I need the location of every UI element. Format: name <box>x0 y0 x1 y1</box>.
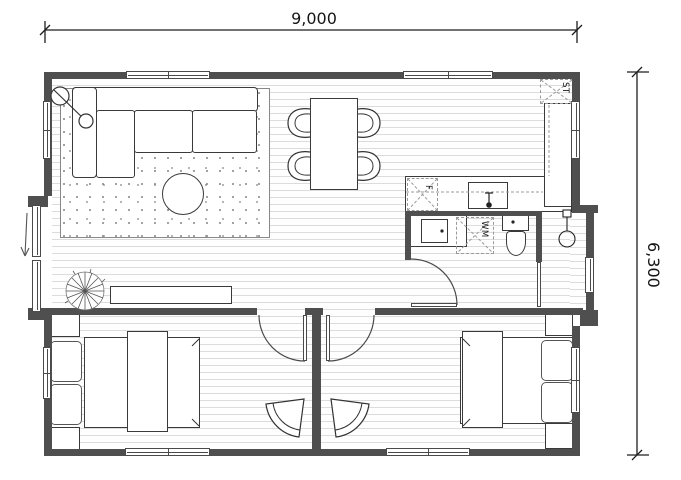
window-right-bedroom2 <box>571 347 580 413</box>
wall-bathroom-hall <box>536 213 542 262</box>
console-table <box>110 286 232 304</box>
fridge-box <box>407 178 438 211</box>
glass-door-panel-lower <box>32 260 41 312</box>
window-left-bedroom1 <box>43 347 51 399</box>
wall-right-step-upper <box>572 205 598 213</box>
sofa-seat-cushion <box>134 110 193 153</box>
storage-label: ST <box>560 82 570 94</box>
window-left-living <box>43 101 51 159</box>
wall-bathroom-top <box>405 211 542 216</box>
dining-table <box>310 98 358 190</box>
bedroom2-nightstand <box>545 423 573 449</box>
window-right-kitchen <box>571 101 580 159</box>
washbasin <box>421 219 448 243</box>
hall-door-leaf <box>537 262 541 307</box>
bedroom2-duvet <box>462 331 503 428</box>
fridge-label: F <box>423 185 433 190</box>
bedroom2-nightstand <box>545 312 573 336</box>
bedroom1-pillow <box>50 341 82 382</box>
bedroom1-duvet <box>127 331 168 432</box>
window-bottom-bedroom2 <box>386 448 470 456</box>
entry-hall-floor <box>570 213 586 310</box>
floor-plan: 9,000 6,300 <box>0 0 681 480</box>
entry-door-opening <box>585 257 594 293</box>
wall-bedroom-separator-right <box>375 308 583 315</box>
glass-door-panel-upper <box>32 205 41 257</box>
wall-bathroom-left <box>405 211 411 260</box>
window-bottom-bedroom1 <box>125 448 210 456</box>
toilet-cistern <box>502 215 529 231</box>
wall-top <box>44 72 580 79</box>
wall-bedroom-separator-left <box>52 308 257 315</box>
bedroom1-door-leaf <box>303 315 307 361</box>
height-dimension-label: 6,300 <box>644 242 663 288</box>
width-dimension-label: 9,000 <box>278 9 350 28</box>
bedroom2-pillow <box>541 382 573 423</box>
wall-between-bedrooms <box>312 315 321 449</box>
bedroom1-pillow <box>50 384 82 425</box>
slide-direction-arrow <box>21 213 29 256</box>
coffee-table <box>162 173 204 215</box>
sofa-chaise-cushion <box>96 110 135 178</box>
sofa-seat-cushion <box>192 110 257 153</box>
bedroom2-pillow <box>541 340 573 381</box>
window-top-kitchen <box>403 71 493 79</box>
bedroom2-door-leaf <box>326 315 330 361</box>
kitchen-sink <box>468 182 508 209</box>
washing-machine-label: WM <box>479 221 489 238</box>
kitchen-tall-counter <box>544 103 572 207</box>
wall-bedroom-separator-center <box>305 308 323 315</box>
sofa-chaise-arm <box>72 87 97 178</box>
bathroom-door-leaf <box>411 303 457 307</box>
sofa-back <box>72 87 258 112</box>
window-top-living <box>126 71 210 79</box>
